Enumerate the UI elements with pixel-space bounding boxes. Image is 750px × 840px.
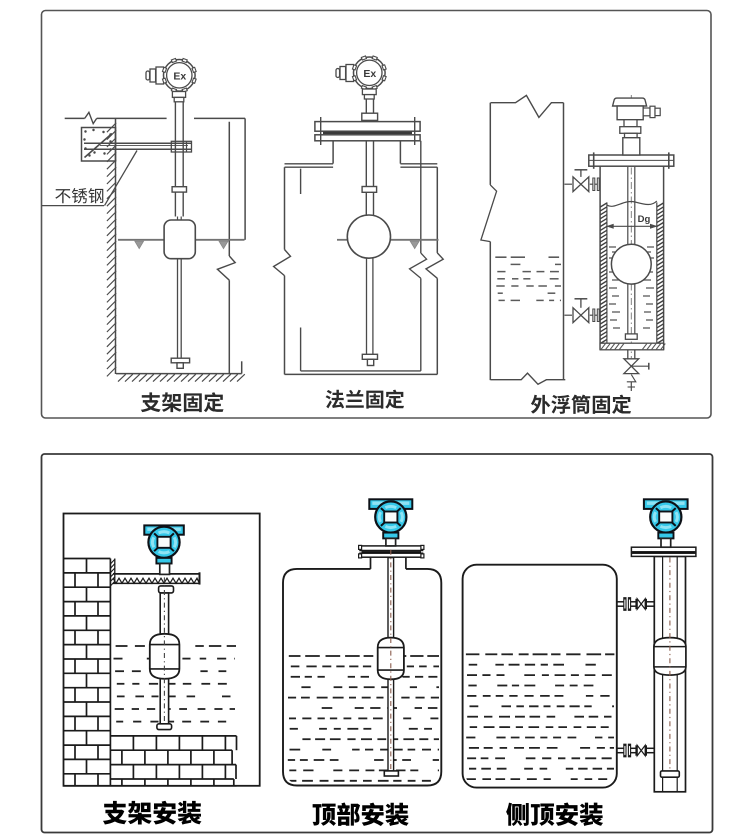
svg-text:Ex: Ex [363,68,376,80]
svg-text:Ex: Ex [173,71,186,83]
svg-text:Dg: Dg [638,214,651,225]
